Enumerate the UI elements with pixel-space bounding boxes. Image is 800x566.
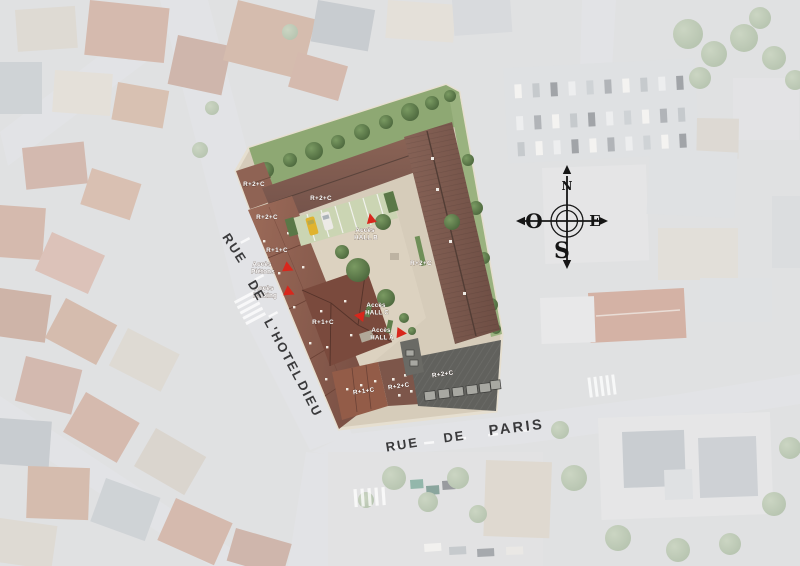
roof-label-nw: R+2+C [243, 181, 265, 188]
roof-label-west: R+1+C [266, 247, 288, 254]
access-label-hall-b: Accès HALL B [354, 227, 378, 242]
compass-letter-west: O [525, 209, 542, 233]
roof-label-east: R+2+C [410, 260, 432, 267]
compass-letter-north: N [562, 179, 573, 193]
aerial-site-plan-view: R+2+C R+2+C R+2+C R+1+C R+2+C R+1+C R+1+… [0, 0, 800, 566]
compass-letter-east: E [589, 212, 600, 230]
access-label-hall-c: Accès HALL C [365, 302, 389, 317]
roof-label-west-upper: R+2+C [256, 214, 278, 221]
svg-text:DE: DE [442, 428, 466, 446]
compass-letter-south: S [554, 238, 570, 264]
roof-label-north: R+2+C [310, 195, 332, 202]
access-label-hall-a: Accès HALL A [370, 327, 394, 342]
access-label-pietons: Accès Piétons [251, 261, 275, 276]
roof-label-southwest: R+1+C [312, 319, 334, 326]
